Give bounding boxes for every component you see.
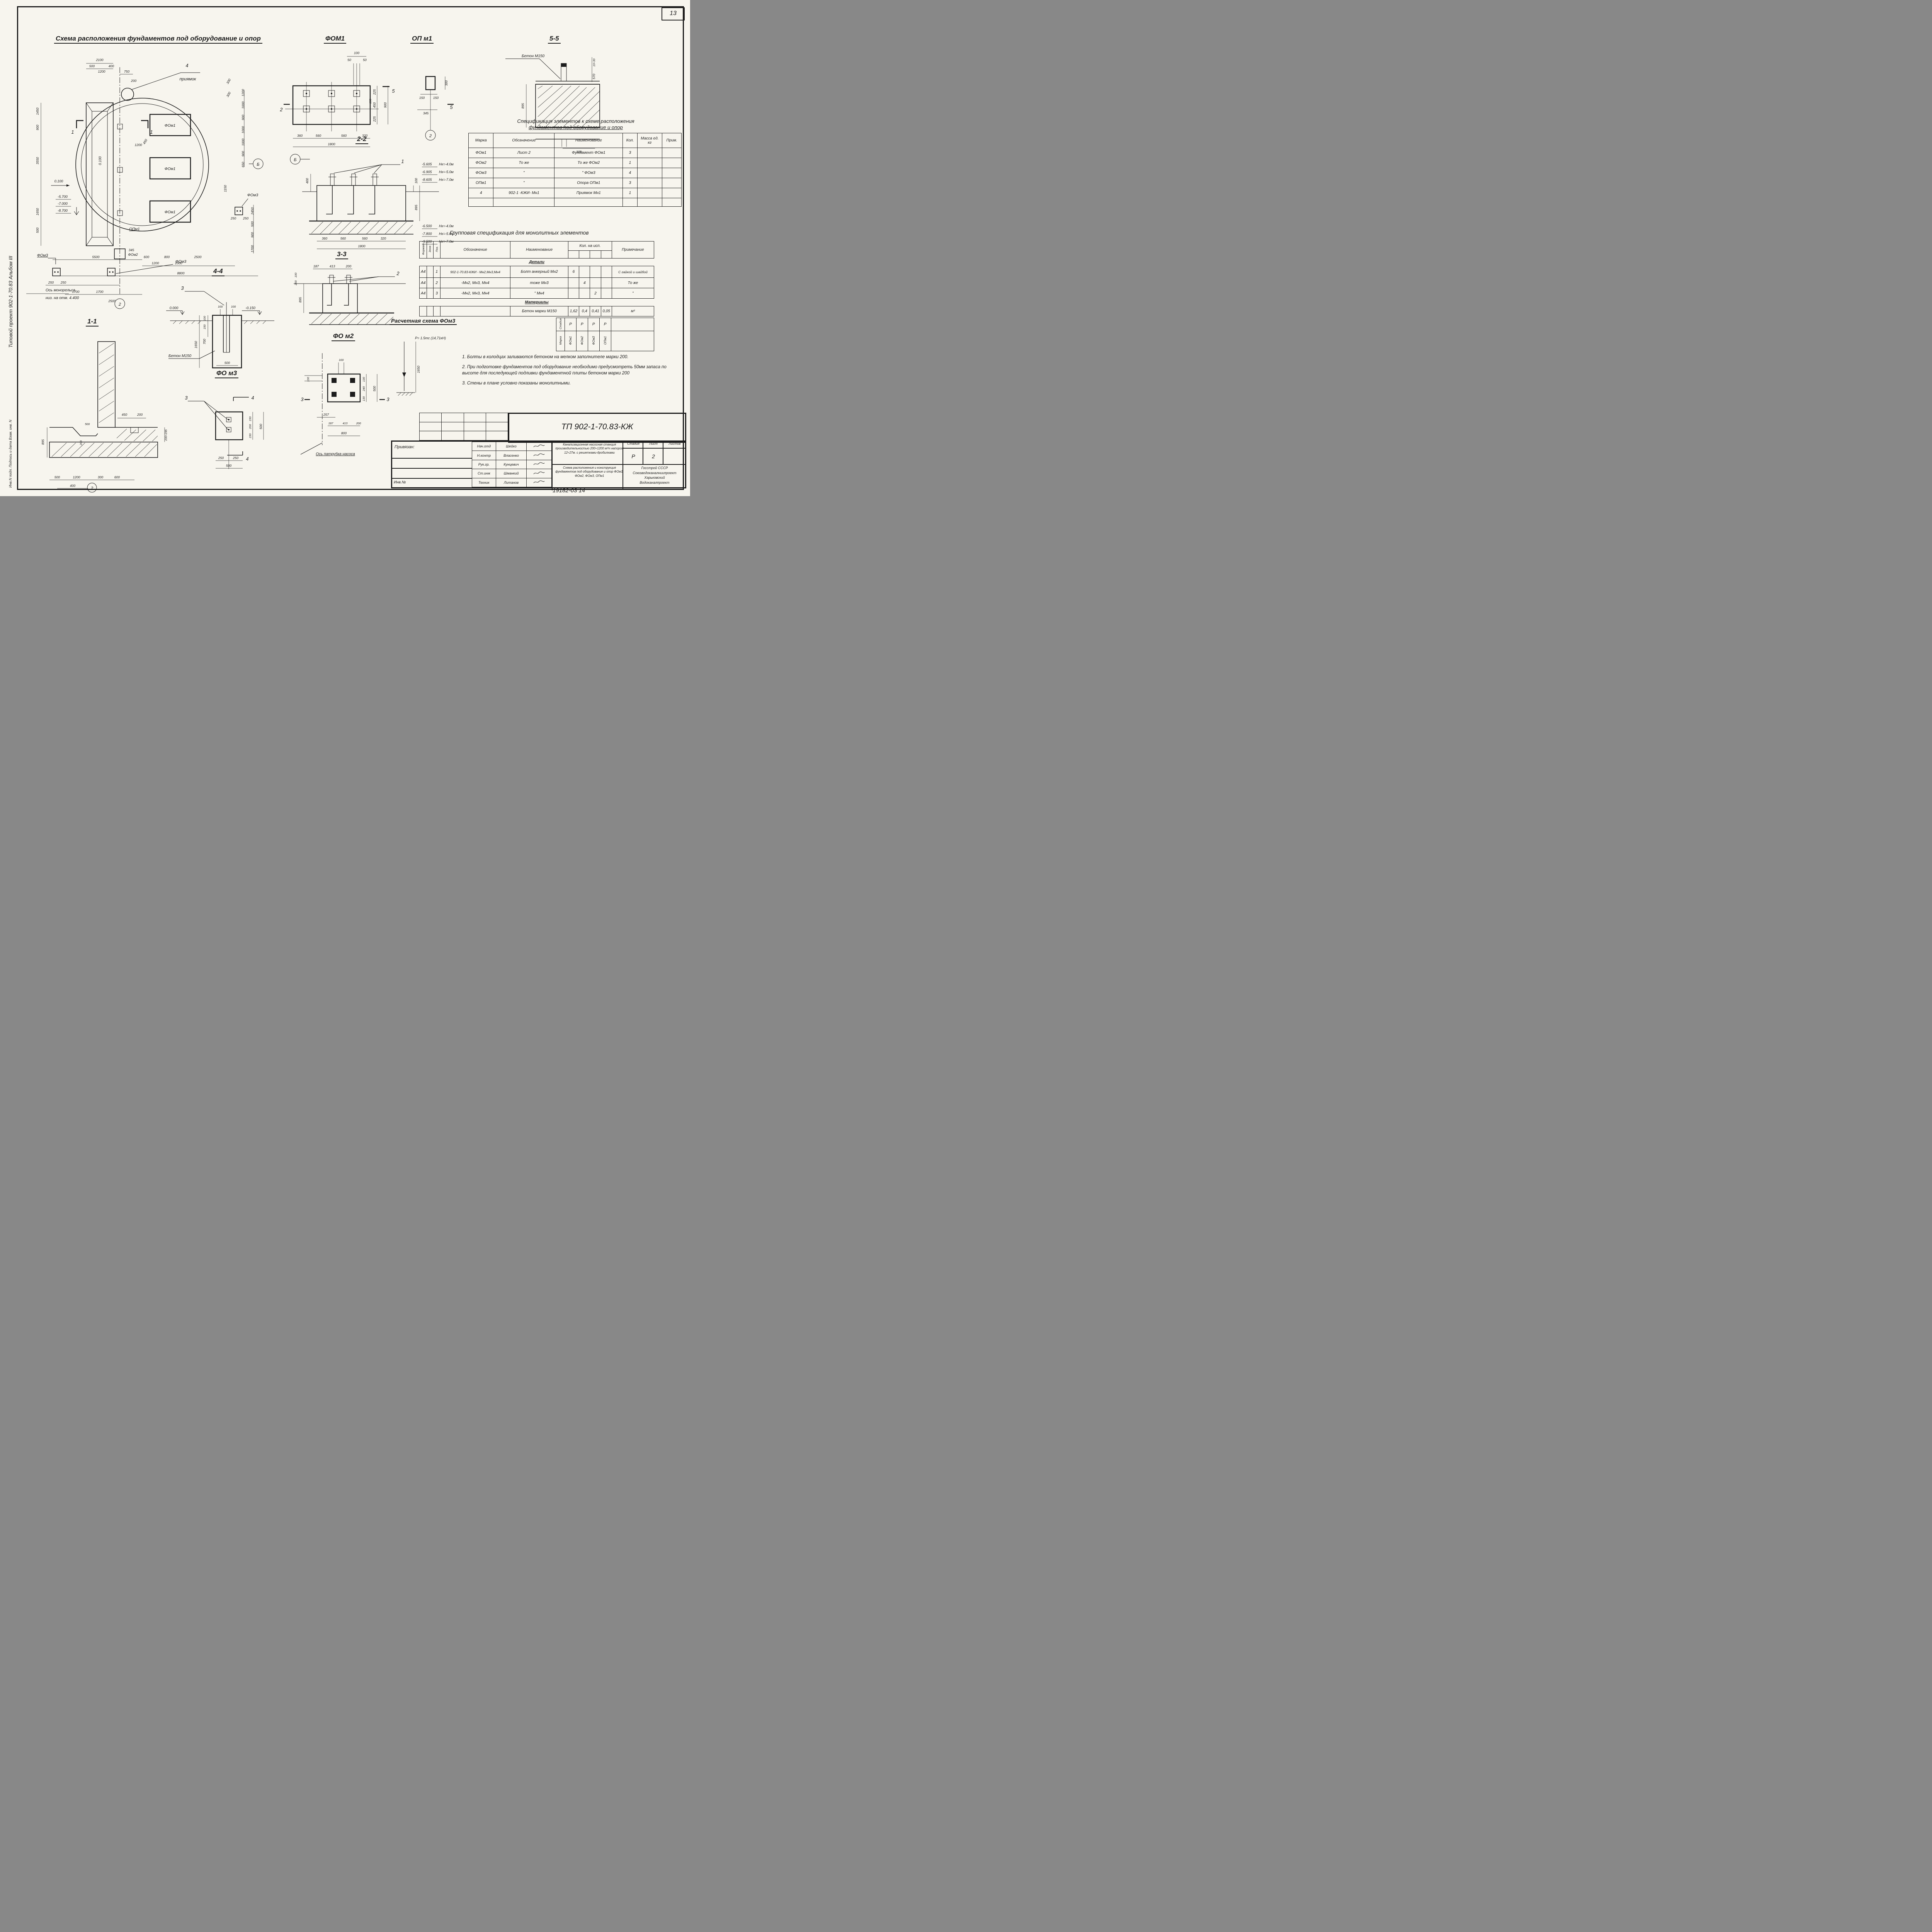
dim: 200 bbox=[79, 440, 83, 446]
dim: 100 bbox=[294, 272, 298, 277]
dim: 1450 bbox=[36, 107, 39, 115]
cell: 3 bbox=[623, 178, 637, 188]
elevation: -7.800 bbox=[422, 232, 432, 236]
head-note: Нк=-5.0м bbox=[439, 170, 454, 174]
dim: 500 bbox=[250, 221, 254, 227]
archive-number: 19182-03 14 bbox=[553, 487, 585, 494]
spec-table: Марка Обозначение Наименование Кол. Масс… bbox=[468, 133, 682, 207]
dim: 1000 bbox=[241, 126, 245, 133]
group-table-title: Групповая спецификация для монолитных эл… bbox=[448, 230, 590, 236]
cell: 1,62 bbox=[568, 306, 579, 316]
cell bbox=[637, 198, 662, 207]
qty-subcol bbox=[579, 251, 590, 259]
group-row: А41902-1-70.83-КЖИ - Мн2,Мн3,Мн4Болт анк… bbox=[420, 266, 654, 278]
cell bbox=[420, 306, 427, 316]
spec-row: ФОм3"" ФОм34 bbox=[469, 168, 682, 178]
spec-row: ФОм2То жеТо же ФОм21 bbox=[469, 158, 682, 168]
dim: 500 bbox=[85, 422, 90, 426]
cell: 4 bbox=[623, 168, 637, 178]
dim: 300 bbox=[226, 91, 232, 98]
personnel-row: Нач.отд Шейко bbox=[472, 442, 552, 451]
s33-geometry bbox=[294, 269, 406, 325]
dim: 200 bbox=[248, 424, 252, 429]
cell bbox=[601, 266, 612, 278]
fom3-detail: 3 4 4 150 200 150 500 250 250 500 bbox=[181, 379, 277, 472]
cell: ФОм1 bbox=[469, 148, 493, 158]
dim: 150 bbox=[203, 324, 206, 329]
cell: С гайкой и шайбой bbox=[612, 266, 654, 278]
opm1-label: ОПм1 bbox=[129, 227, 139, 231]
axis-bubble-b: Б bbox=[257, 162, 259, 167]
dim: 50 bbox=[347, 58, 351, 62]
dim: 413 bbox=[343, 422, 348, 425]
dim: 200 bbox=[137, 413, 143, 417]
fom1-geometry bbox=[284, 56, 389, 147]
group-header-oboz: Обозначение bbox=[440, 241, 510, 259]
group-header-naim: Наименование bbox=[510, 241, 568, 259]
dim: 250 bbox=[60, 281, 66, 284]
cell: 1 bbox=[623, 188, 637, 198]
dim: 257 bbox=[323, 413, 329, 417]
section-materials: Материалы bbox=[525, 300, 549, 304]
person-name: Кунцевич bbox=[496, 460, 527, 469]
cell: 2 bbox=[433, 278, 440, 288]
spec-header: Наименование bbox=[554, 133, 623, 148]
elevation: -7.000 bbox=[58, 202, 68, 206]
dim: 100 bbox=[306, 377, 310, 382]
cell: Болт анкерный Мн2 bbox=[510, 266, 568, 278]
role: Техник bbox=[472, 478, 496, 487]
materials-row: Бетон марки М1501,620,40,410,05м³ bbox=[420, 306, 654, 316]
divider bbox=[392, 468, 472, 469]
group-header-zone: Зона bbox=[428, 246, 432, 252]
dim: 3550 bbox=[36, 157, 39, 164]
dim: 1700 bbox=[96, 290, 104, 294]
cell: А4 bbox=[420, 266, 427, 278]
section-mark-5: 5 bbox=[450, 105, 453, 110]
s11-section: 895 450 200 500 200 200÷295 500 1200 300… bbox=[34, 326, 169, 488]
dim: 200 bbox=[131, 79, 136, 83]
dim: 300 bbox=[98, 475, 103, 479]
dim: 130 bbox=[362, 396, 366, 401]
callout-3: 3 bbox=[185, 395, 188, 401]
cell: ФОм3 bbox=[469, 168, 493, 178]
inv-number-label: Инв.№ bbox=[394, 480, 406, 485]
elevation: -5.605 bbox=[422, 162, 432, 166]
plan-geometry bbox=[26, 63, 263, 309]
cell bbox=[579, 266, 590, 278]
role: Нач.отд bbox=[472, 442, 496, 451]
cell bbox=[601, 288, 612, 299]
cell bbox=[427, 288, 433, 299]
dim: 187 bbox=[328, 422, 333, 425]
person-name: Власенко bbox=[496, 451, 527, 460]
spec-header: Кол. bbox=[623, 133, 637, 148]
dim: 450 bbox=[142, 138, 148, 145]
signature-mark bbox=[527, 442, 552, 451]
dim: 500 bbox=[54, 475, 60, 479]
dim: 400 bbox=[305, 178, 309, 184]
dim: 250 bbox=[218, 456, 224, 460]
dim: 100 bbox=[218, 305, 223, 308]
spec-title-line1: Спецификация элементов к схеме расположе… bbox=[479, 118, 672, 124]
cell bbox=[662, 198, 682, 207]
dim: 360 bbox=[322, 236, 327, 240]
role: Н.контр bbox=[472, 451, 496, 460]
stage-value: Р bbox=[622, 448, 643, 465]
mark-value: ФОм1 bbox=[569, 336, 572, 345]
calc-scheme: Р= 1.5тс (14,71кН) 1650 bbox=[395, 327, 461, 404]
dim: 200 bbox=[345, 264, 351, 268]
section-mark-5: 5 bbox=[392, 88, 395, 94]
dim: 150 bbox=[433, 96, 439, 100]
dim: 150 bbox=[419, 96, 425, 100]
spec-header: Прим. bbox=[662, 133, 682, 148]
project-description: Канализационная насосная станция произво… bbox=[552, 442, 626, 466]
fom3-geometry bbox=[188, 397, 264, 469]
dim: 450 bbox=[372, 102, 376, 108]
dim: 2500 bbox=[108, 299, 116, 303]
privyazan-label: Привязан: bbox=[395, 445, 415, 449]
cell: 1 bbox=[623, 158, 637, 168]
cell bbox=[469, 198, 493, 207]
spec-row: ФОм1Лист 2Фундамент ФОм13 bbox=[469, 148, 682, 158]
cell: " ФОм3 bbox=[554, 168, 623, 178]
s22-title: 2-2 bbox=[355, 135, 368, 144]
dim: 360 bbox=[297, 134, 303, 138]
personnel-row: Н.контр Власенко bbox=[472, 451, 552, 460]
cell: " bbox=[612, 288, 654, 299]
dim: 10÷30 bbox=[592, 58, 596, 67]
dim: 150 bbox=[248, 416, 252, 421]
cell bbox=[637, 188, 662, 198]
dim: 130 bbox=[362, 377, 366, 382]
fom1-detail-title: ФОМ1 bbox=[324, 35, 346, 44]
cell bbox=[427, 306, 433, 316]
person-name: Литанов bbox=[496, 478, 527, 487]
sheets-header: Листов bbox=[663, 442, 686, 448]
cell bbox=[662, 188, 682, 198]
cell: 3 bbox=[433, 288, 440, 299]
fom1-detail: 100 50 50 225 450 225 900 100 360 560 56… bbox=[277, 43, 397, 155]
dim: 100 bbox=[339, 358, 344, 362]
dim: 200÷295 bbox=[164, 429, 168, 441]
dim: 100 bbox=[414, 178, 418, 184]
cell: 6 bbox=[568, 266, 579, 278]
dim: 400 bbox=[70, 484, 75, 488]
dim: 600 bbox=[114, 475, 120, 479]
dim: 250 bbox=[243, 216, 248, 220]
dim: 1800 bbox=[358, 244, 366, 248]
fom1-label: ФОм1 bbox=[165, 124, 175, 128]
cell bbox=[662, 168, 682, 178]
axis-bubble-2: 2 bbox=[90, 486, 93, 491]
dim: 100 bbox=[369, 99, 372, 104]
empty-cell bbox=[611, 331, 654, 351]
plan-drawing: 4 приямок ФОм1 ФОм1 ФОм1 ОПм1 ФОм2 ФОм3 … bbox=[19, 45, 266, 311]
cell: 3 bbox=[623, 148, 637, 158]
cell bbox=[637, 168, 662, 178]
dim: 250 bbox=[233, 456, 238, 460]
axis-bubble-2: 2 bbox=[429, 134, 432, 138]
cell: 902-1 -КЖИ- Мн1 bbox=[493, 188, 554, 198]
elevation: 0.100 bbox=[54, 179, 63, 183]
dim: 750 bbox=[124, 70, 129, 73]
pit-label: приямок bbox=[179, 77, 196, 82]
concrete-callout: Бетон М150 bbox=[168, 354, 191, 358]
stage-label: Стадия bbox=[559, 318, 562, 329]
cell bbox=[623, 198, 637, 207]
dim: 2450 bbox=[250, 207, 254, 215]
side-label-project: Типовой проект 902-1-70.83 Альбом III bbox=[8, 256, 14, 348]
dim: 560 bbox=[362, 236, 367, 240]
cell bbox=[554, 198, 623, 207]
side-label-inv: Инв.N подл. Подпись и дата Взам. инв. N bbox=[9, 420, 12, 488]
dim: 800 bbox=[341, 431, 347, 435]
calc-geometry bbox=[396, 342, 416, 396]
cell: 1 bbox=[433, 266, 440, 278]
fom1-label: ФОм1 bbox=[165, 210, 175, 214]
title-block: Привязан: Инв.№ Нач.отд Шейко Н.контр Вл… bbox=[391, 440, 686, 488]
group-header-note: Примечание bbox=[612, 241, 654, 259]
head-note: Нк=-4.0м bbox=[439, 224, 454, 228]
elevation: -8.700 bbox=[58, 209, 68, 213]
dim: 150 bbox=[248, 433, 252, 438]
note-2: 2. При подготовке фундаментов под оборуд… bbox=[462, 364, 679, 377]
s55-title: 5-5 bbox=[548, 35, 561, 44]
cell bbox=[662, 178, 682, 188]
concrete-callout: Бетон М150 bbox=[522, 54, 544, 58]
organization: Госстрой СССР Союзводоканалниипроект Хар… bbox=[622, 464, 686, 489]
cell: А4 bbox=[420, 278, 427, 288]
cell: 0,05 bbox=[601, 306, 612, 316]
dim: 1650 bbox=[417, 366, 420, 373]
dim: 500 bbox=[226, 464, 231, 468]
dim: 570 bbox=[592, 74, 596, 79]
dim: 895 bbox=[521, 103, 525, 109]
dim: 1200 bbox=[241, 89, 245, 96]
cell: ОПм1 bbox=[469, 178, 493, 188]
cell bbox=[568, 278, 579, 288]
dim: 700 bbox=[202, 339, 206, 344]
group-header-qty: Кол. на исп. bbox=[568, 241, 612, 251]
person-name: Шейко bbox=[496, 442, 527, 451]
cell: Приямок Мн1 bbox=[554, 188, 623, 198]
s11-title: 1-1 bbox=[86, 318, 99, 327]
org-line: Харьковский bbox=[623, 475, 686, 480]
cell: 2 bbox=[590, 288, 601, 299]
cell: " Мн4 bbox=[510, 288, 568, 299]
dim: 1700 bbox=[250, 245, 254, 252]
dim: 345 bbox=[423, 111, 429, 115]
dim: 900 bbox=[241, 151, 245, 156]
group-row: А42-Мн2, Мн3, Мн4тоже Мн34То же bbox=[420, 278, 654, 288]
sheets-value bbox=[663, 448, 686, 465]
role: Ст.инж bbox=[472, 469, 496, 478]
section-mark-3: 3 bbox=[301, 397, 304, 402]
org-line: Госстрой СССР bbox=[623, 466, 686, 471]
cell bbox=[637, 148, 662, 158]
dim: 1150 bbox=[223, 185, 227, 192]
qty-subcol bbox=[568, 251, 579, 259]
elevation: -5.700 bbox=[58, 195, 68, 199]
fom2-detail: 100 100 130 240 130 500 257 187 413 200 … bbox=[289, 342, 393, 457]
dim: 1000 bbox=[241, 101, 245, 109]
signature-mark bbox=[527, 451, 552, 460]
signature-mark bbox=[527, 460, 552, 469]
dim: 895 bbox=[298, 297, 302, 303]
org-line: Союзводоканалниипроект bbox=[623, 471, 686, 476]
group-header-format: Формат bbox=[422, 243, 425, 255]
s11-geometry bbox=[47, 342, 165, 492]
section-mark-2: 2 bbox=[280, 107, 283, 112]
cell bbox=[662, 158, 682, 168]
dim: 895 bbox=[41, 439, 45, 445]
dim: 500 bbox=[224, 361, 230, 365]
elevation: 0.000 bbox=[170, 306, 179, 310]
doc-code: ТП 902-1-70.83-КЖ bbox=[508, 413, 686, 443]
opm1-detail: 300 150 150 345 5 2 bbox=[402, 46, 468, 147]
cell bbox=[601, 278, 612, 288]
drawing-sheet: 13 Типовой проект 902-1-70.83 Альбом III… bbox=[0, 0, 690, 496]
dim: 345 bbox=[129, 248, 134, 252]
stage-value: Р bbox=[599, 318, 611, 331]
s22-geometry bbox=[290, 154, 439, 249]
empty-cell bbox=[611, 318, 654, 331]
spec-header: Марка bbox=[469, 133, 493, 148]
elevation: -6.905 bbox=[422, 170, 432, 174]
head-note: Нк=-4.0м bbox=[439, 162, 454, 166]
personnel-row: Рук.гр. Кунцевич bbox=[472, 460, 552, 469]
cell: " bbox=[493, 178, 554, 188]
s22-section: Б 1 400 100 895 360 560 560 320 1800 -5.… bbox=[286, 144, 452, 247]
spec-row bbox=[469, 198, 682, 207]
person-name: Шманкий bbox=[496, 469, 527, 478]
personnel-row: Ст.инж Шманкий bbox=[472, 469, 552, 478]
group-row: А43-Мн2, Мн3, Мн4" Мн42" bbox=[420, 288, 654, 299]
dim: 200 bbox=[294, 280, 298, 286]
dim: 560 bbox=[316, 134, 321, 138]
dim: 900 bbox=[383, 102, 387, 108]
head-note: Нк=-7.0м bbox=[439, 178, 454, 182]
s33-title: 3-3 bbox=[335, 250, 348, 259]
dim: 1200 bbox=[98, 70, 105, 73]
fom3-label: ФОм3 bbox=[37, 253, 48, 258]
dim: 1000 bbox=[175, 261, 182, 265]
cell bbox=[427, 266, 433, 278]
elevation: -0.150 bbox=[245, 306, 255, 310]
dim: 900 bbox=[241, 115, 245, 120]
s44-section: 3 0.000 -0.150 100 100 100 150 700 1650 … bbox=[162, 275, 278, 368]
dim: 500 bbox=[36, 228, 39, 233]
elevation: -6.500 bbox=[422, 224, 432, 228]
dim: 650 bbox=[241, 162, 245, 167]
plan-title: Схема расположения фундаментов под обору… bbox=[54, 35, 262, 44]
elevation: 0.100 bbox=[98, 156, 102, 165]
spec-table-title: Спецификация элементов к схеме расположе… bbox=[479, 118, 672, 131]
callout-2: 2 bbox=[396, 271, 400, 276]
dim: 800 bbox=[164, 255, 170, 259]
cell: м³ bbox=[612, 306, 654, 316]
dim: 300 bbox=[444, 80, 448, 86]
section-mark-4: 4 bbox=[246, 456, 249, 462]
section-details: Детали bbox=[529, 260, 544, 264]
cell bbox=[579, 288, 590, 299]
fom3-detail-title: ФО м3 bbox=[215, 369, 238, 378]
spec-header: Обозначение bbox=[493, 133, 554, 148]
dim: 100 bbox=[354, 51, 359, 55]
cell: ФОм2 bbox=[469, 158, 493, 168]
section-mark-3: 3 bbox=[387, 397, 389, 402]
load-value: Р= 1.5тс (14,71кН) bbox=[415, 336, 446, 340]
elevation: -8.605 bbox=[422, 178, 432, 182]
revision-grid bbox=[419, 413, 508, 440]
note-3: 3. Стены в плане условно показаны моноли… bbox=[462, 380, 679, 387]
dim: 400 bbox=[109, 64, 114, 68]
monorail-note: Ось монорельса bbox=[46, 288, 75, 293]
dim: 900 bbox=[36, 125, 39, 130]
dim: 600 bbox=[144, 255, 149, 259]
cell bbox=[590, 278, 601, 288]
cell bbox=[637, 158, 662, 168]
dim: 100 bbox=[231, 305, 236, 308]
cell: -Мн2, Мн3, Мн4 bbox=[440, 278, 510, 288]
qty-subcol bbox=[590, 251, 601, 259]
fom2-geometry bbox=[301, 353, 385, 454]
sheet-value: 2 bbox=[643, 448, 663, 465]
fom1-label: ФОм1 bbox=[165, 167, 175, 171]
callout-3: 3 bbox=[181, 286, 184, 291]
stage-value: Р bbox=[576, 318, 588, 331]
dim: 225 bbox=[372, 89, 376, 95]
cell: " bbox=[493, 168, 554, 178]
mark-value: ФОм2 bbox=[580, 336, 584, 345]
role: Рук.гр. bbox=[472, 460, 496, 469]
dim: 1200 bbox=[135, 143, 142, 147]
sheet-header: Лист bbox=[643, 442, 663, 448]
dim: 100 bbox=[203, 316, 206, 321]
cell bbox=[568, 288, 579, 299]
fom2-label: ФОм2 bbox=[128, 253, 138, 257]
dim: 895 bbox=[414, 205, 418, 210]
dim: 240 bbox=[362, 386, 366, 391]
dim: 187 bbox=[313, 264, 319, 268]
cell: Фундамент ФОм1 bbox=[554, 148, 623, 158]
dim: 1200 bbox=[152, 261, 159, 265]
drawing-title: Схема расположения и кон­струкция фундам… bbox=[552, 464, 626, 490]
note-1: 1. Болты в колодцах заливаются бетоном н… bbox=[462, 354, 679, 361]
cell: -Мн2, Мн3, Мн4 bbox=[440, 288, 510, 299]
stage-mark-stamp: Стадия Р Р Р Р Марка ФОм1 ФОм2 ФОм3 ОПм1 bbox=[556, 318, 654, 351]
spec-header: Масса ед. кг bbox=[637, 133, 662, 148]
dim: 413 bbox=[330, 264, 335, 268]
dim: 1700 bbox=[72, 290, 80, 294]
calc-title: Расчетная схема ФОм3 bbox=[389, 318, 457, 325]
dim: 225 bbox=[372, 116, 376, 122]
cell: 902-1-70.83-КЖИ - Мн2,Мн3,Мн4 bbox=[440, 266, 510, 278]
cell bbox=[637, 178, 662, 188]
cell: Бетон марки М150 bbox=[510, 306, 568, 316]
opm1-detail-title: ОП м1 bbox=[410, 35, 434, 44]
dim: 1650 bbox=[194, 341, 198, 348]
org-line: Водоканалпроект bbox=[623, 480, 686, 485]
axis-bubble-b: Б bbox=[294, 158, 296, 162]
cell: Опора ОПм1 bbox=[554, 178, 623, 188]
notes-block: 1. Болты в колодцах заливаются бетоном н… bbox=[462, 354, 679, 390]
divider bbox=[392, 478, 472, 479]
dim: 500 bbox=[89, 64, 95, 68]
mark-value: ФОм3 bbox=[592, 336, 595, 345]
